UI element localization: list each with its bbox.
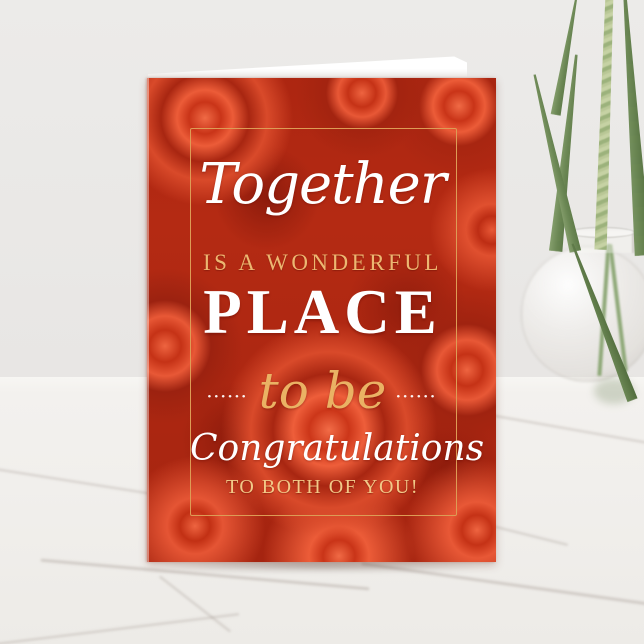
card-line-to-be-row: •••••• to be •••••• — [190, 354, 455, 428]
card-line-congratulations: Congratulations — [190, 428, 455, 469]
grass-leaf — [550, 0, 583, 116]
card-line-is-a-wonderful: IS A WONDERFUL — [190, 250, 455, 276]
marble-vein — [491, 414, 644, 445]
product-photo-scene: Together IS A WONDERFUL PLACE •••••• to … — [0, 0, 644, 644]
wheat-stalk — [590, 0, 621, 250]
grass-leaf — [615, 0, 644, 256]
card-line-to-be: to be — [259, 362, 387, 420]
greeting-card-front: Together IS A WONDERFUL PLACE •••••• to … — [147, 78, 496, 562]
card-line-together: Together — [190, 152, 455, 217]
card-line-place: PLACE — [190, 276, 455, 349]
decorative-dots-left: •••••• — [208, 391, 249, 403]
marble-vein — [0, 613, 239, 644]
card-line-to-both-of-you: TO BOTH OF YOU! — [190, 476, 455, 499]
decorative-dots-right: •••••• — [396, 391, 437, 403]
marble-vein — [159, 576, 231, 633]
card-inside-page — [148, 56, 467, 79]
